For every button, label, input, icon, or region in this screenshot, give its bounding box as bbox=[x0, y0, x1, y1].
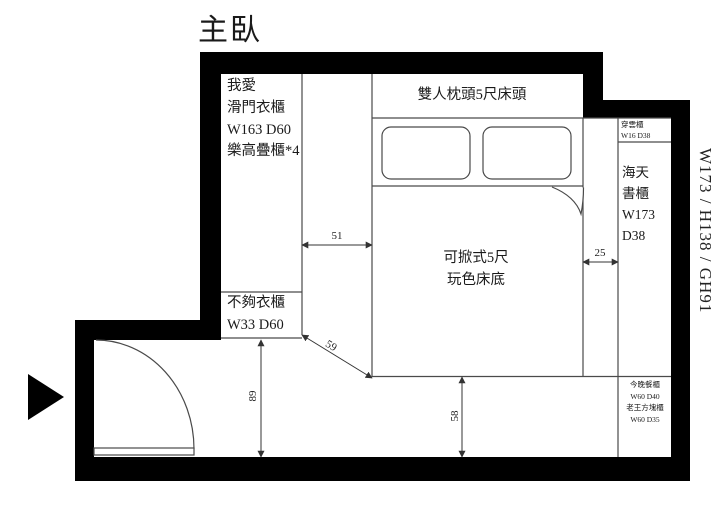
wardrobe-label: 我愛 滑門衣櫃 W163 D60 樂高疊櫃*4 bbox=[227, 76, 300, 163]
page-title: 主臥 bbox=[198, 8, 262, 53]
wall-top-right-step-vertical bbox=[583, 74, 603, 102]
side-cabinets-label: 今晚餐櫃 W60 D40 老王方塊櫃 W60 D35 bbox=[614, 379, 676, 426]
door-swing-arc bbox=[96, 340, 194, 449]
wall-bottom bbox=[75, 457, 690, 481]
pillow-right bbox=[483, 127, 571, 179]
dim-51: 51 bbox=[317, 230, 357, 242]
wall-spec-label: W173 / H138 / GH91 bbox=[695, 148, 715, 313]
door-leaf bbox=[94, 448, 194, 455]
floorplan-master-bedroom: 主臥 bbox=[0, 0, 727, 505]
bed-label: 可掀式5尺 玩色床底 bbox=[396, 248, 556, 292]
dim-89: 89 bbox=[247, 376, 259, 416]
entrance-arrow-icon bbox=[28, 374, 64, 420]
small-wardrobe-label: 不夠衣櫃 W33 D60 bbox=[227, 293, 285, 337]
wall-door-step bbox=[75, 320, 221, 340]
window-cabinet-label: 穿雲櫃 W16 D38 bbox=[621, 120, 650, 142]
wall-left-upper bbox=[200, 52, 221, 340]
wall-top bbox=[200, 52, 603, 74]
dim-25: 25 bbox=[580, 247, 620, 259]
blanket-fold bbox=[552, 187, 584, 214]
dim-59: 59 bbox=[311, 331, 351, 362]
dim-58: 58 bbox=[449, 396, 461, 436]
bookcase-label: 海天 書櫃 W173 D38 bbox=[622, 163, 655, 247]
pillow-left bbox=[382, 127, 470, 179]
headboard-label: 雙人枕頭5尺床頭 bbox=[372, 85, 572, 107]
